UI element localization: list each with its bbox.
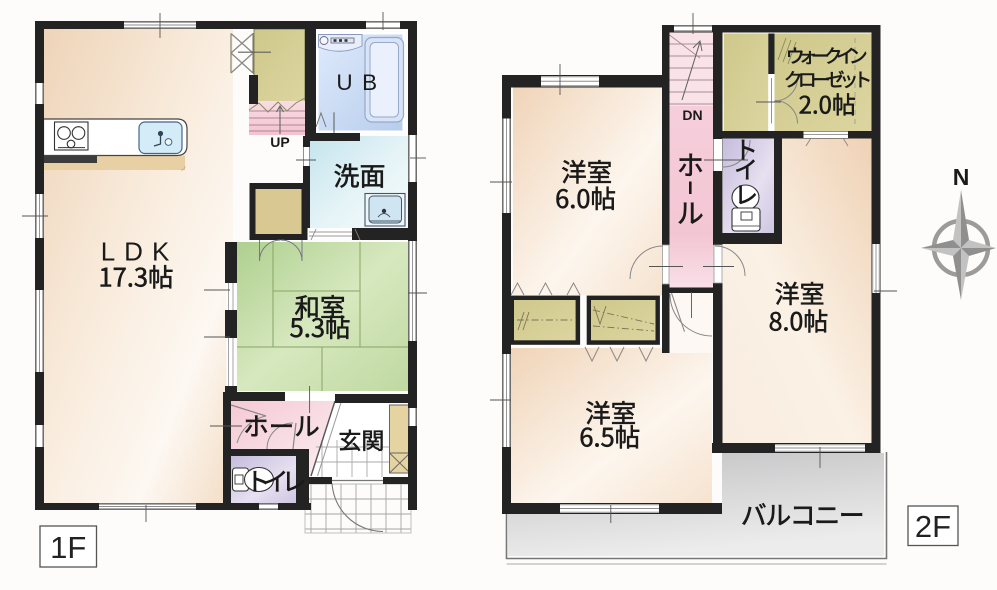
svg-text:DN: DN — [682, 107, 702, 123]
svg-text:1F: 1F — [50, 530, 86, 565]
svg-text:2F: 2F — [915, 509, 951, 544]
svg-text:N: N — [953, 164, 970, 190]
svg-text:LDK: LDK — [101, 237, 179, 267]
svg-text:UB: UB — [336, 70, 386, 95]
svg-text:UP: UP — [270, 134, 289, 150]
